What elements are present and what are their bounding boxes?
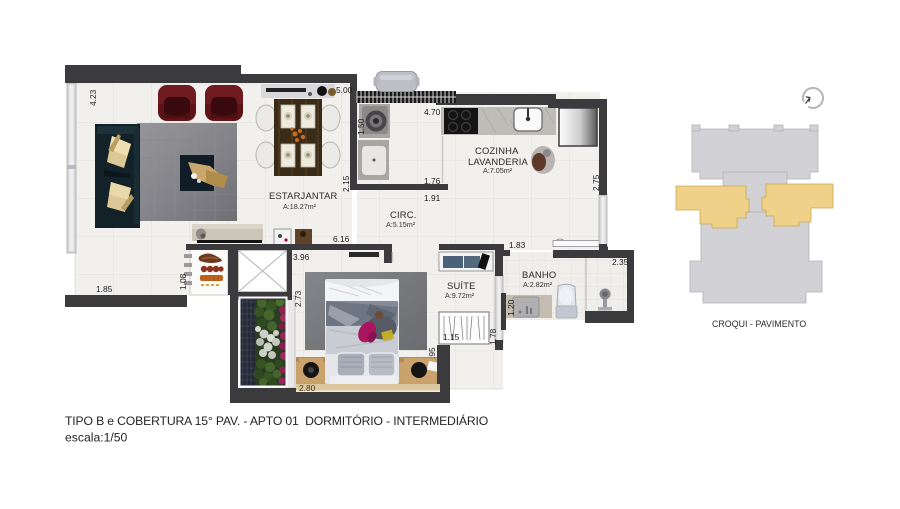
svg-text:5.00: 5.00	[336, 85, 353, 95]
svg-text:1.20: 1.20	[506, 299, 516, 316]
svg-text:TIPO B e COBERTURA 15° PAV. -: TIPO B e COBERTURA 15° PAV. - APTO 01 DO…	[65, 413, 488, 428]
svg-text:4.70: 4.70	[424, 107, 441, 117]
svg-text:2.80: 2.80	[299, 383, 316, 393]
svg-text:SUÍTE: SUÍTE	[447, 280, 476, 291]
svg-text:2.75: 2.75	[591, 174, 601, 191]
svg-text:BANHO: BANHO	[522, 269, 556, 280]
svg-text:2.73: 2.73	[293, 290, 303, 307]
svg-text:A:9.72m²: A:9.72m²	[445, 291, 475, 300]
svg-text:1.08: 1.08	[178, 273, 188, 290]
svg-text:2.15: 2.15	[341, 175, 351, 192]
svg-text:CIRC.: CIRC.	[390, 209, 417, 220]
svg-text:3.96: 3.96	[293, 252, 310, 262]
svg-text:2.35: 2.35	[612, 257, 629, 267]
svg-text:1.91: 1.91	[424, 193, 441, 203]
svg-text:4.23: 4.23	[88, 89, 98, 106]
svg-text:6.16: 6.16	[333, 234, 350, 244]
svg-text:COZINHA: COZINHA	[475, 145, 519, 156]
svg-text:ESTARJANTAR: ESTARJANTAR	[269, 190, 338, 201]
svg-text:A:7.05m²: A:7.05m²	[483, 166, 513, 175]
svg-text:escala:1/50: escala:1/50	[65, 431, 128, 445]
svg-text:A:2.82m²: A:2.82m²	[523, 280, 553, 289]
svg-text:1.85: 1.85	[96, 284, 113, 294]
svg-text:CROQUI - PAVIMENTO: CROQUI - PAVIMENTO	[712, 319, 806, 329]
svg-text:1.15: 1.15	[443, 332, 460, 342]
svg-text:A:5.15m²: A:5.15m²	[386, 220, 416, 229]
svg-text:1.83: 1.83	[509, 240, 526, 250]
svg-text:.95: .95	[427, 347, 437, 359]
svg-text:1.50: 1.50	[356, 118, 366, 135]
svg-text:1.78: 1.78	[488, 328, 498, 345]
svg-text:1.76: 1.76	[424, 176, 441, 186]
svg-text:A:18.27m²: A:18.27m²	[283, 202, 317, 211]
